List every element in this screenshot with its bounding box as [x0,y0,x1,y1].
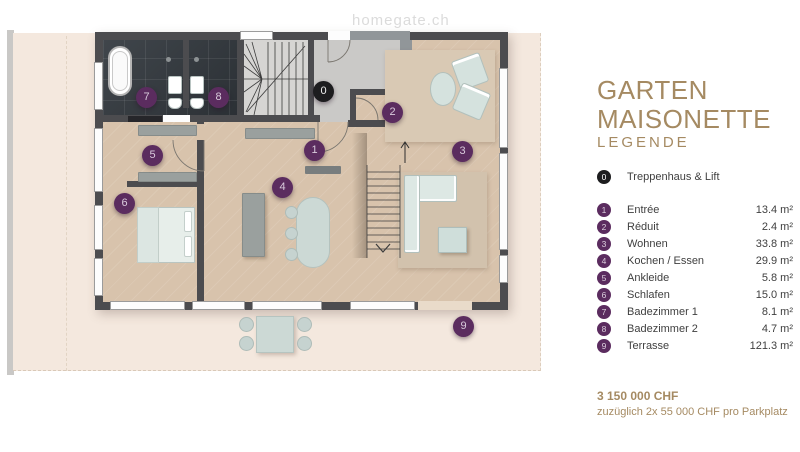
window-south [252,301,322,310]
sink-2 [190,76,204,94]
marker-terrasse: 9 [453,316,474,337]
floorplan: 0 1 2 3 4 5 6 7 8 9 homegate.ch [0,0,560,452]
terrace-chair [297,336,312,351]
legend-number-badge: 6 [597,288,611,302]
window-east [499,255,508,283]
legend-area: 4.7 m² [762,323,793,335]
bathroom-door-gap [163,115,190,122]
hall-south-wall [237,115,320,122]
legend-row: 2Réduit2.4 m² [597,218,793,235]
legend-label: Entrée [627,204,659,216]
ankleide-door-gap [197,124,204,140]
bedroom-east-wall [197,122,204,302]
legend-row-stairwell: 0 Treppenhaus & Lift [597,168,793,185]
legend-row: 4Kochen / Essen29.9 m² [597,252,793,269]
window-south [192,301,245,310]
north-wall-lintel [350,31,410,40]
kitchen-island [242,193,265,257]
wardrobe-top [138,125,197,136]
bathtub-basin [112,51,128,91]
legend-number-badge: 7 [597,305,611,319]
kitchen-counter [245,128,315,139]
price: 3 150 000 CHF [597,389,678,403]
legend-label: Ankleide [627,272,669,284]
window-south [350,301,415,310]
legend-row: 9Terrasse121.3 m² [597,337,793,354]
legend-row: 5Ankleide5.8 m² [597,269,793,286]
stair-shadow [352,133,367,258]
dining-table [296,197,330,268]
legend-label: Réduit [627,221,659,233]
page: 0 1 2 3 4 5 6 7 8 9 homegate.ch GARTEN M… [0,0,800,452]
marker-badezimmer-2: 8 [208,87,229,108]
stairwell-east-wall [308,40,314,122]
sink-1 [168,76,182,94]
window-west [94,62,103,110]
terrace-chair [239,336,254,351]
legend-number-badge: 0 [597,170,611,184]
stairwell-west-wall [237,40,244,122]
terrace-table [256,316,294,353]
page-title: GARTEN MAISONETTE [597,76,771,134]
legend-label: Treppenhaus & Lift [627,171,720,183]
entree-sideboard [305,166,341,174]
marker-reduit: 2 [382,102,403,123]
legend-label: Badezimmer 2 [627,323,698,335]
marker-ankleide: 5 [142,145,163,166]
title-line-1: GARTEN [597,76,771,105]
stairwell-floor [244,40,308,122]
legend-area: 8.1 m² [762,306,793,318]
watermark: homegate.ch [352,12,450,29]
toilet-2 [190,98,204,109]
bathroom-partition-wall [183,40,189,108]
legend-label: Wohnen [627,238,668,250]
terrace-chair [297,317,312,332]
terrace-door-opening [418,301,472,310]
pouf [430,72,456,106]
marker-badezimmer-1: 7 [136,87,157,108]
tap-2 [194,57,199,62]
legend-area: 29.9 m² [756,255,793,267]
legend-row: 6Schlafen15.0 m² [597,286,793,303]
tap-1 [166,57,171,62]
bed-pillow [184,236,192,257]
window-west [94,258,103,296]
legend-number-badge: 5 [597,271,611,285]
marker-entree: 1 [304,140,325,161]
toilet-1 [168,98,182,109]
window-west [94,128,103,192]
legend-list: 1Entrée13.4 m² 2Réduit2.4 m² 3Wohnen33.8… [597,201,793,354]
legend-number-badge: 1 [597,203,611,217]
bed-blanket [137,207,159,263]
legend-area: 13.4 m² [756,204,793,216]
legend-label: Kochen / Essen [627,255,704,267]
legend-number-badge: 2 [597,220,611,234]
legend-label: Terrasse [627,340,669,352]
legend-number-badge: 3 [597,237,611,251]
marker-treppenhaus: 0 [313,81,334,102]
window-east [499,153,508,250]
legend-label: Badezimmer 1 [627,306,698,318]
legend-number-badge: 8 [597,322,611,336]
legend-row: 7Badezimmer 18.1 m² [597,303,793,320]
legend-area: 2.4 m² [762,221,793,233]
terrace-boundary-dashed-line [66,36,67,371]
legend-row: 8Badezimmer 24.7 m² [597,320,793,337]
price-note: zuzüglich 2x 55 000 CHF pro Parkplatz [597,406,788,418]
marker-wohnen: 3 [452,141,473,162]
sofa-side-section [404,175,420,253]
legend-area: 33.8 m² [756,238,793,250]
bathroom-vanity-strip [128,116,162,122]
dining-chair [285,206,298,219]
window-east [499,68,508,148]
legend-heading: LEGENDE [597,134,690,151]
legend-row: 1Entrée13.4 m² [597,201,793,218]
window-west [94,205,103,250]
coffee-table [438,227,467,253]
legend-area: 5.8 m² [762,272,793,284]
marker-schlafen: 6 [114,193,135,214]
legend-panel: GARTEN MAISONETTE LEGENDE 0 Treppenhaus … [597,0,793,452]
window-south [110,301,185,310]
legend-row: 3Wohnen33.8 m² [597,235,793,252]
title-line-2: MAISONETTE [597,105,771,134]
legend-label: Schlafen [627,289,670,301]
legend-area: 15.0 m² [756,289,793,301]
legend-area: 121.3 m² [750,340,793,352]
dining-chair [285,227,298,240]
legend-number-badge: 9 [597,339,611,353]
terrace-chair [239,317,254,332]
wardrobe-bottom [138,172,197,182]
window-north [240,31,273,40]
legend-number-badge: 4 [597,254,611,268]
dining-chair [285,248,298,261]
marker-kochen-essen: 4 [272,177,293,198]
bed-pillow [184,211,192,232]
entry-door-gap [328,31,350,40]
